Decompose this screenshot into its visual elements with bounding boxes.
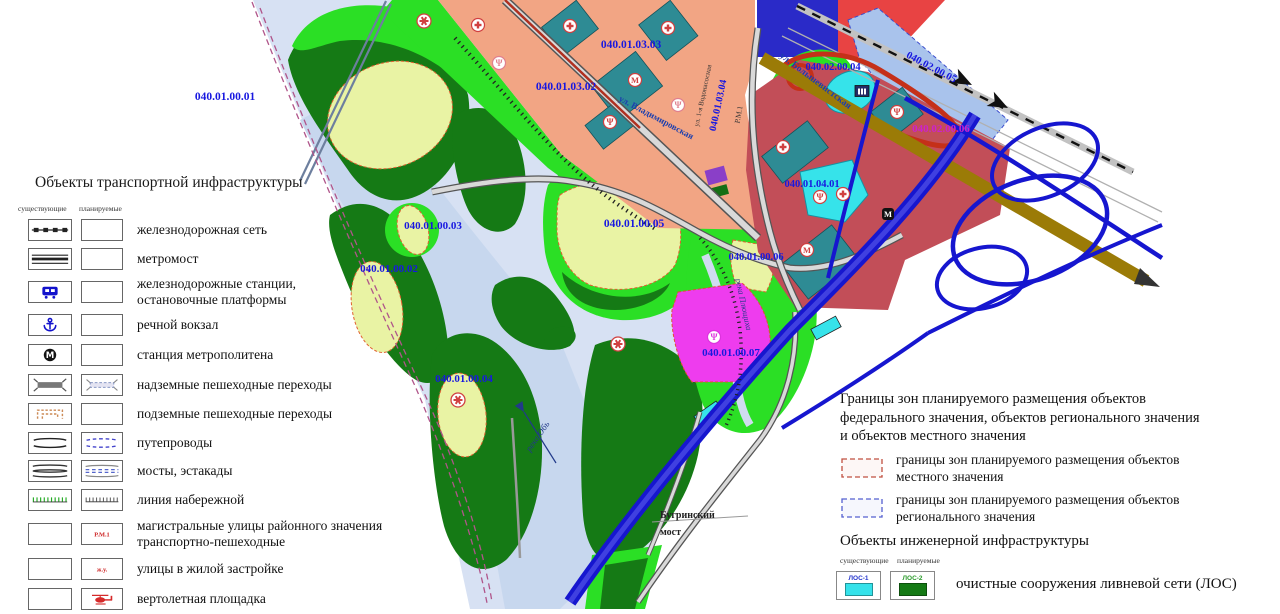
transport-legend-title: Объекты транспортной инфраструктуры xyxy=(35,174,448,192)
engineering-legend: Объекты инженерной инфраструктуры сущест… xyxy=(836,532,1280,600)
legend-row-label: подземные пешеходные переходы xyxy=(137,406,332,422)
svg-text:М: М xyxy=(46,351,55,361)
legend-row-label: путепроводы xyxy=(137,435,212,451)
engineering-legend-rows: ЛОС-1ЛОС-2очистные сооружения ливневой с… xyxy=(836,571,1280,600)
transport-legend-rows: железнодорожная сетьметромостжелезнодоро… xyxy=(0,216,448,614)
legend-row-label: железнодорожные станции, остановочные пл… xyxy=(137,276,296,308)
legend-row-label: магистральные улицы районного значения т… xyxy=(137,518,382,550)
empty-box xyxy=(81,403,123,425)
legend-row-label: надземные пешеходные переходы xyxy=(137,377,332,393)
map-label: мост xyxy=(660,527,681,538)
legend-row-label: очистные сооружения ливневой сети (ЛОС) xyxy=(956,576,1237,593)
legend-row: надземные пешеходные переходы xyxy=(0,370,448,399)
color-swatch xyxy=(845,583,873,596)
railway-line-icon xyxy=(28,219,72,241)
map-label: 040.02.00.04 xyxy=(805,62,861,73)
legend-row: Р.М.1магистральные улицы районного значе… xyxy=(0,515,448,553)
boundaries-legend-title: Границы зон планируемого размещения объе… xyxy=(840,390,1280,446)
legend-row: вертолетная площадка xyxy=(0,584,448,614)
embankment-gray-icon xyxy=(81,489,123,511)
metro-bridge-icon xyxy=(28,248,72,270)
map-label: 040.01.03.03 xyxy=(601,39,662,51)
cross-icon xyxy=(472,19,485,32)
svg-text:Ψ: Ψ xyxy=(816,192,823,202)
viaduct-dashed-icon xyxy=(81,432,123,454)
legend-row-label: железнодорожная сеть xyxy=(137,222,267,238)
legend-column-headers: существующие планируемые xyxy=(836,556,1280,568)
helipad-icon xyxy=(417,14,431,28)
trident-icon: Ψ xyxy=(493,57,506,70)
legend-row-label: вертолетная площадка xyxy=(137,591,266,607)
legend-row: линия набережной xyxy=(0,485,448,515)
legend-row-label: улицы в жилой застройке xyxy=(137,561,284,577)
legend-row: ж.у.улицы в жилой застройке xyxy=(0,553,448,584)
map-label: 040.01.00.07 xyxy=(702,347,760,359)
empty-box xyxy=(28,523,72,545)
trident-icon: Ψ xyxy=(891,106,904,119)
legend-row: границы зон планируемого размещения объе… xyxy=(836,451,1280,486)
zone-blue-dashed-icon xyxy=(840,497,884,519)
bridge-dashed-icon xyxy=(81,460,123,482)
map-label: 040.01.00.05 xyxy=(604,218,665,230)
bridge-solid-icon xyxy=(28,460,72,482)
underpass-icon xyxy=(28,403,72,425)
map-label: 040.01.03.02 xyxy=(536,81,597,93)
cross-icon xyxy=(662,22,675,35)
legend-row: мосты, эстакады xyxy=(0,457,448,485)
trident-icon: Ψ xyxy=(604,116,617,129)
empty-box xyxy=(81,314,123,336)
col-planned-label: планируемые xyxy=(897,556,940,565)
legend-row: речной вокзал xyxy=(0,310,448,340)
svg-text:Ψ: Ψ xyxy=(495,58,502,68)
metro-station-red-icon: М xyxy=(801,244,814,257)
metro-m-black-icon: М xyxy=(882,208,894,220)
viaduct-solid-icon xyxy=(28,432,72,454)
legend-row-label: линия набережной xyxy=(137,492,244,508)
metro-m-icon: М xyxy=(28,344,72,366)
svg-text:М: М xyxy=(884,209,892,219)
svg-text:Ψ: Ψ xyxy=(674,100,681,110)
legend-row: метромост xyxy=(0,244,448,274)
los-label: ЛОС-1 xyxy=(848,575,868,582)
empty-box xyxy=(28,558,72,580)
legend-row: путепроводы xyxy=(0,428,448,457)
legend-row-label: метромост xyxy=(137,251,198,267)
legend-row-label: речной вокзал xyxy=(137,317,218,333)
svg-text:Ψ: Ψ xyxy=(606,117,613,127)
anchor-icon xyxy=(28,314,72,336)
building-icon xyxy=(855,86,869,97)
boundaries-legend-rows: границы зон планируемого размещения объе… xyxy=(836,451,1280,526)
cross-icon xyxy=(777,141,790,154)
empty-box xyxy=(81,219,123,241)
road-class-text: Р.М.1 xyxy=(81,523,123,545)
col-existing-label: существующие xyxy=(18,204,67,213)
road-class-text: ж.у. xyxy=(81,558,123,580)
helipad-icon xyxy=(451,393,465,407)
legend-row-label: границы зон планируемого размещения объе… xyxy=(896,491,1179,526)
empty-box xyxy=(81,281,123,303)
map-label: 040.01.00.01 xyxy=(195,91,256,103)
overpass-solid-icon xyxy=(28,374,72,396)
helipad-icon xyxy=(611,337,625,351)
map-label: 040.01.04.01 xyxy=(784,179,839,190)
empty-box xyxy=(81,248,123,270)
legend-row-label: границы зон планируемого размещения объе… xyxy=(896,451,1179,486)
map-label: Бугринский xyxy=(660,510,715,521)
trident-icon: Ψ xyxy=(708,331,721,344)
engineering-legend-title: Объекты инженерной инфраструктуры xyxy=(840,532,1280,550)
svg-text:Ψ: Ψ xyxy=(710,332,717,342)
embankment-green-icon xyxy=(28,489,72,511)
svg-text:Р.М.1: Р.М.1 xyxy=(94,532,109,539)
legend-row-label: мосты, эстакады xyxy=(137,463,232,479)
legend-column-headers: существующие планируемые xyxy=(0,204,448,216)
legend-row: подземные пешеходные переходы xyxy=(0,399,448,428)
legend-row: железнодорожные станции, остановочные пл… xyxy=(0,274,448,310)
svg-text:ж.у.: ж.у. xyxy=(97,566,108,573)
col-existing-label: существующие xyxy=(840,556,889,565)
helicopter-icon xyxy=(81,588,123,610)
empty-box xyxy=(81,344,123,366)
zone-red-dashed-icon xyxy=(840,457,884,479)
empty-box xyxy=(28,588,72,610)
svg-text:М: М xyxy=(631,75,639,85)
svg-text:М: М xyxy=(803,245,811,255)
transport-legend: Объекты транспортной инфраструктуры суще… xyxy=(0,174,448,614)
legend-row: ЛОС-1ЛОС-2очистные сооружения ливневой с… xyxy=(836,571,1280,600)
legend-row: границы зон планируемого размещения объе… xyxy=(836,491,1280,526)
page: { "map": { "colors": { "wetland": "#d7e1… xyxy=(0,0,1280,609)
metro-station-red-icon: М xyxy=(629,74,642,87)
los-existing-icon: ЛОС-1 xyxy=(836,571,881,600)
legend-row: Мстанция метрополитена xyxy=(0,340,448,370)
los-label: ЛОС-2 xyxy=(902,575,922,582)
trident-icon: Ψ xyxy=(814,191,827,204)
col-planned-label: планируемые xyxy=(79,204,122,213)
legend-row-label: станция метрополитена xyxy=(137,347,273,363)
cross-icon xyxy=(564,20,577,33)
color-swatch xyxy=(899,583,927,596)
legend-row: железнодорожная сеть xyxy=(0,216,448,244)
train-icon xyxy=(28,281,72,303)
trident-icon: Ψ xyxy=(672,99,685,112)
map-label: 040.02.00.06 xyxy=(912,123,970,135)
svg-text:Ψ: Ψ xyxy=(893,107,900,117)
los-planned-icon: ЛОС-2 xyxy=(890,571,935,600)
overpass-dashed-icon xyxy=(81,374,123,396)
boundaries-legend: Границы зон планируемого размещения объе… xyxy=(836,390,1280,526)
map-label: 040.01.00.06 xyxy=(728,252,783,263)
